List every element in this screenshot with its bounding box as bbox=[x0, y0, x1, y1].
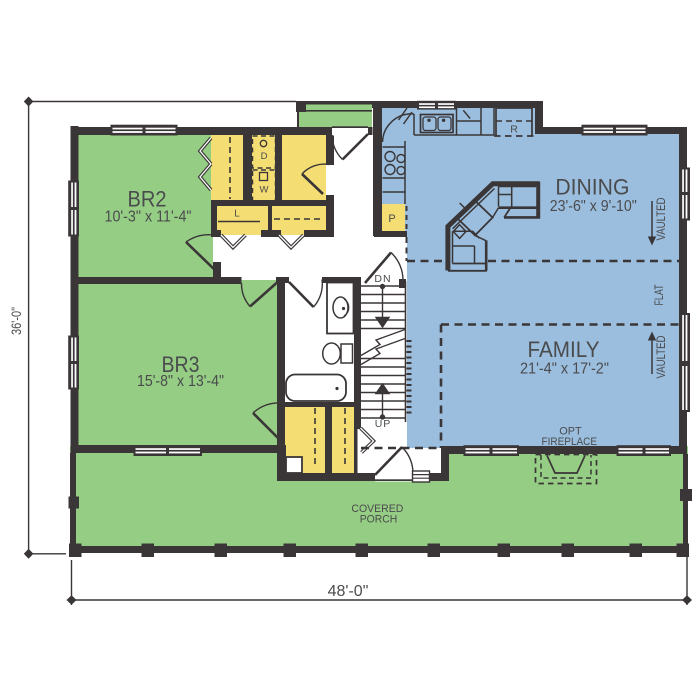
svg-text:FAMILY: FAMILY bbox=[528, 337, 600, 362]
svg-text:L: L bbox=[234, 209, 240, 220]
svg-text:P: P bbox=[388, 213, 395, 225]
svg-text:UP: UP bbox=[375, 418, 392, 430]
svg-text:PORCH: PORCH bbox=[360, 514, 398, 526]
svg-text:23'-6" x 9'-10": 23'-6" x 9'-10" bbox=[550, 198, 637, 215]
svg-text:21'-4" x 17'-2": 21'-4" x 17'-2" bbox=[520, 361, 609, 378]
svg-text:DINING: DINING bbox=[555, 175, 629, 200]
svg-text:10'-3" x 11'-4": 10'-3" x 11'-4" bbox=[105, 209, 192, 226]
svg-text:VAULTED: VAULTED bbox=[656, 336, 668, 379]
svg-text:W: W bbox=[260, 185, 269, 196]
svg-text:48'-0": 48'-0" bbox=[328, 583, 369, 600]
svg-text:36'-0": 36'-0" bbox=[9, 307, 24, 335]
svg-text:FLAT: FLAT bbox=[654, 285, 666, 306]
svg-text:D: D bbox=[261, 151, 268, 162]
svg-text:FIREPLACE: FIREPLACE bbox=[542, 436, 598, 448]
svg-text:DN: DN bbox=[374, 273, 391, 285]
svg-text:15'-8" x 13'-4": 15'-8" x 13'-4" bbox=[137, 373, 224, 390]
svg-text:VAULTED: VAULTED bbox=[656, 198, 668, 241]
svg-text:R: R bbox=[510, 124, 518, 136]
